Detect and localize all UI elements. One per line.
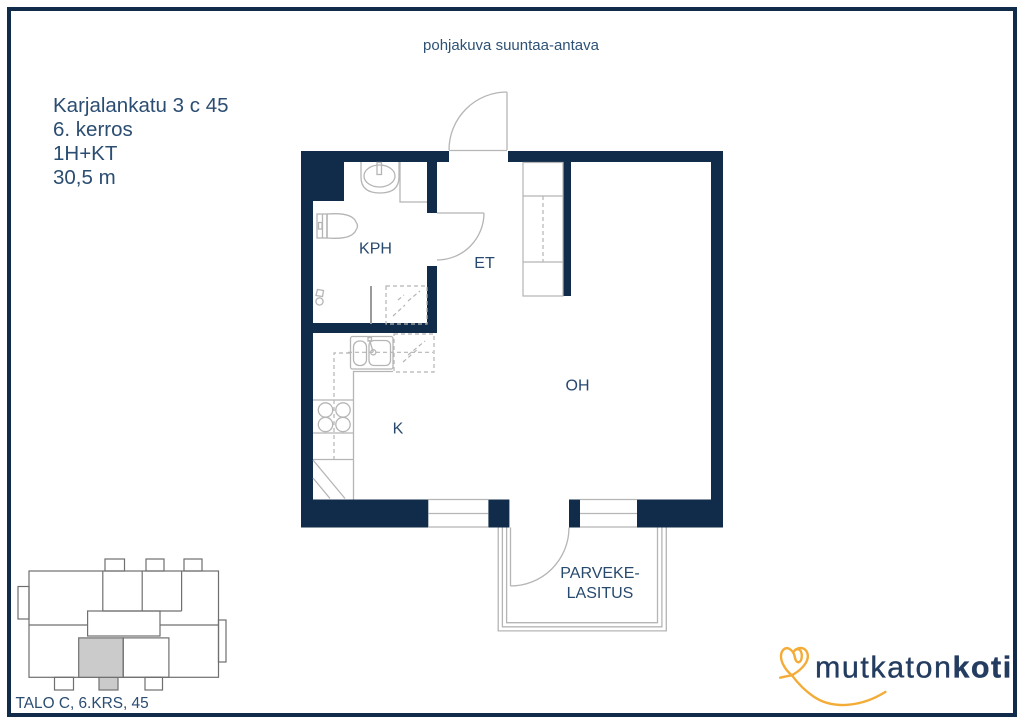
svg-text:1H+KT: 1H+KT xyxy=(53,142,118,165)
svg-text:pohjakuva suuntaa-antava: pohjakuva suuntaa-antava xyxy=(423,37,600,54)
svg-text:Karjalankatu 3 c 45: Karjalankatu 3 c 45 xyxy=(53,94,229,117)
svg-text:30,5 m: 30,5 m xyxy=(53,166,116,189)
svg-text:PARVEKE-: PARVEKE- xyxy=(560,565,639,582)
svg-text:mutkatonkoti: mutkatonkoti xyxy=(815,651,1013,685)
svg-text:OH: OH xyxy=(566,378,590,395)
svg-text:ET: ET xyxy=(474,255,495,272)
svg-text:K: K xyxy=(393,421,404,438)
svg-text:LASITUS: LASITUS xyxy=(567,585,634,602)
svg-text:KPH: KPH xyxy=(359,241,392,258)
svg-text:6. kerros: 6. kerros xyxy=(53,118,133,141)
svg-text:TALO C, 6.KRS, 45: TALO C, 6.KRS, 45 xyxy=(16,695,149,712)
